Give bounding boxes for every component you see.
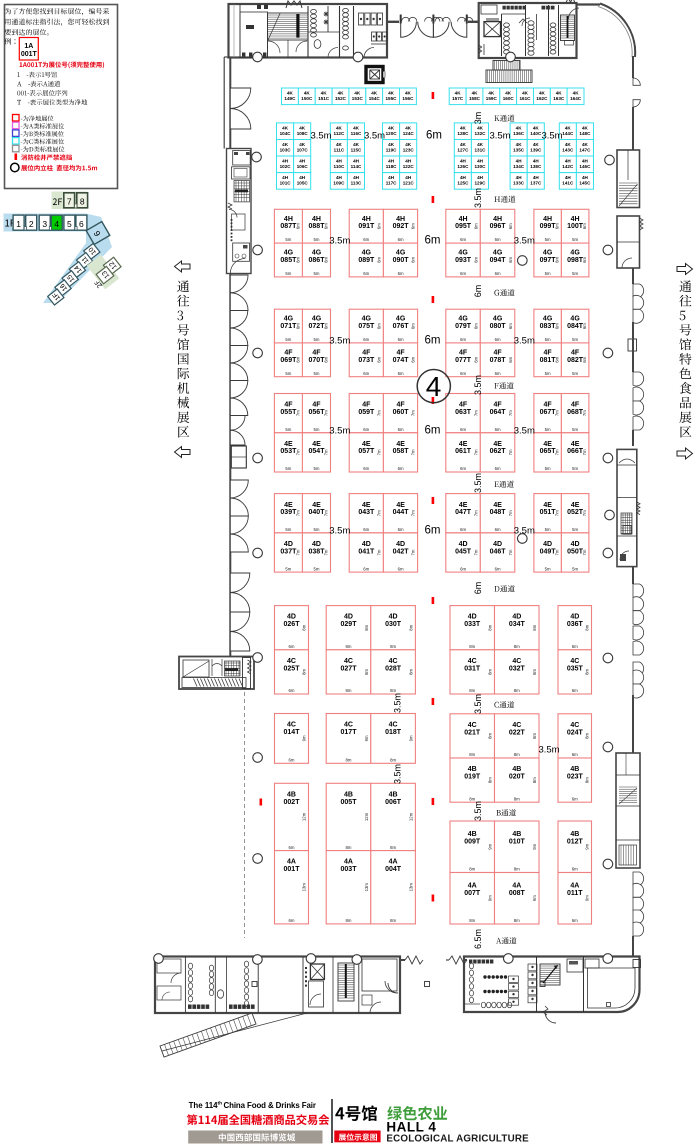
svg-text:6m: 6m (289, 688, 295, 693)
svg-text:078T: 078T (490, 357, 507, 364)
svg-text:8m: 8m (488, 777, 493, 783)
svg-text:6m: 6m (495, 427, 501, 432)
svg-text:4E: 4E (543, 502, 552, 509)
svg-text:7m: 7m (554, 449, 559, 455)
svg-text:4K: 4K (488, 91, 495, 96)
svg-text:8m: 8m (346, 688, 352, 693)
svg-text:6m: 6m (295, 223, 300, 229)
svg-text:107C: 107C (297, 147, 309, 152)
svg-text:042T: 042T (393, 548, 410, 555)
svg-text:6m: 6m (554, 223, 559, 229)
svg-text:4D: 4D (468, 614, 477, 621)
svg-text:041T: 041T (358, 548, 375, 555)
svg-text:4: 4 (54, 219, 59, 229)
svg-text:5m: 5m (314, 237, 320, 242)
svg-text:157C: 157C (452, 96, 464, 101)
svg-text:5m: 5m (285, 337, 291, 342)
svg-text:5m: 5m (285, 466, 291, 471)
svg-text:132C: 132C (475, 131, 487, 136)
svg-text:7m: 7m (508, 510, 513, 516)
svg-text:019T: 019T (464, 774, 481, 781)
svg-text:6m: 6m (398, 271, 404, 276)
svg-text:8m: 8m (514, 644, 520, 649)
svg-text:6m: 6m (460, 527, 466, 532)
svg-text:4K: 4K (299, 126, 306, 131)
svg-text:6m: 6m (426, 130, 442, 142)
svg-text:5m: 5m (572, 427, 578, 432)
svg-text:8m: 8m (514, 752, 520, 757)
svg-text:4K: 4K (582, 142, 589, 147)
svg-text:027T: 027T (341, 665, 358, 672)
svg-text:4F: 4F (284, 402, 293, 409)
svg-text:6m: 6m (554, 323, 559, 329)
svg-text:3.5m: 3.5m (541, 131, 562, 142)
svg-text:4G: 4G (312, 316, 322, 323)
svg-text:4D: 4D (389, 614, 398, 621)
svg-text:102C: 102C (280, 164, 292, 169)
svg-text:4E: 4E (459, 502, 468, 509)
svg-text:063T: 063T (455, 409, 472, 416)
svg-text:4D: 4D (312, 541, 321, 548)
svg-text:6m: 6m (363, 371, 369, 376)
svg-text:6m: 6m (411, 356, 416, 362)
svg-text:3.5m: 3.5m (393, 693, 403, 713)
svg-text:009T: 009T (464, 839, 481, 846)
svg-text:6m: 6m (460, 337, 466, 342)
svg-text:057T: 057T (358, 448, 375, 455)
svg-text:6m: 6m (582, 323, 587, 329)
svg-text:6m: 6m (376, 223, 381, 229)
svg-text:4G: 4G (570, 316, 580, 323)
svg-text:153C: 153C (352, 96, 364, 101)
svg-text:002T: 002T (284, 799, 301, 806)
svg-text:4F: 4F (284, 350, 293, 357)
svg-text:134C: 134C (513, 164, 525, 169)
svg-text:7m: 7m (508, 449, 513, 455)
svg-text:3.5m: 3.5m (514, 426, 535, 437)
svg-text:8m: 8m (585, 777, 590, 783)
svg-text:5m: 5m (545, 566, 551, 571)
svg-text:4F: 4F (397, 402, 406, 409)
svg-text:5m: 5m (314, 427, 320, 432)
svg-text:7m: 7m (376, 510, 381, 516)
svg-text:6m: 6m (425, 335, 441, 347)
svg-text:034T: 034T (509, 621, 526, 628)
svg-text:5m: 5m (285, 527, 291, 532)
svg-text:5m: 5m (545, 527, 551, 532)
svg-text:3: 3 (42, 219, 47, 229)
svg-text:4K: 4K (460, 126, 467, 131)
svg-text:6m: 6m (473, 223, 478, 229)
svg-text:4A: 4A (468, 883, 477, 890)
svg-text:12m: 12m (302, 812, 307, 821)
svg-text:7m: 7m (582, 549, 587, 555)
svg-text:4D: 4D (287, 614, 296, 621)
svg-text:4D: 4D (344, 614, 353, 621)
svg-text:5m: 5m (285, 271, 291, 276)
svg-text:139C: 139C (530, 147, 542, 152)
svg-text:114C: 114C (351, 164, 362, 169)
svg-text:5m: 5m (314, 466, 320, 471)
svg-text:6m: 6m (460, 427, 466, 432)
svg-text:HALL 4: HALL 4 (386, 1120, 436, 1135)
svg-text:6m: 6m (376, 323, 381, 329)
svg-text:3.5m: 3.5m (473, 801, 483, 821)
svg-text:146C: 146C (579, 164, 591, 169)
svg-text:8m: 8m (346, 758, 352, 763)
svg-text:4K: 4K (282, 142, 289, 147)
svg-text:8m: 8m (532, 624, 537, 630)
svg-text:142C: 142C (562, 164, 574, 169)
svg-text:4G: 4G (362, 250, 372, 257)
svg-text:4K: 4K (533, 142, 540, 147)
svg-text:3.5m: 3.5m (393, 764, 403, 784)
svg-text:020T: 020T (509, 774, 526, 781)
svg-text:022T: 022T (509, 729, 526, 736)
svg-text:5m: 5m (572, 271, 578, 276)
svg-text:4F: 4F (459, 402, 468, 409)
svg-text:004T: 004T (385, 866, 402, 873)
svg-text:4A: 4A (287, 859, 296, 866)
svg-text:079T: 079T (455, 323, 472, 330)
svg-text:164C: 164C (570, 96, 582, 101)
svg-text:4G: 4G (396, 250, 406, 257)
svg-text:6m: 6m (460, 371, 466, 376)
svg-text:6m: 6m (473, 285, 483, 298)
svg-text:4K: 4K (405, 91, 412, 96)
svg-text:121C: 121C (403, 181, 415, 186)
svg-text:4F: 4F (312, 350, 321, 357)
svg-text:133C: 133C (513, 181, 525, 186)
svg-text:5m: 5m (572, 371, 578, 376)
svg-text:115C: 115C (351, 147, 362, 152)
svg-text:6m: 6m (582, 223, 587, 229)
svg-text:8m: 8m (514, 796, 520, 801)
svg-text:4E: 4E (459, 441, 468, 448)
svg-text:117C: 117C (386, 181, 397, 186)
svg-text:4K: 4K (287, 91, 294, 96)
svg-text:8m: 8m (532, 733, 537, 739)
svg-text:9m: 9m (532, 895, 537, 901)
svg-text:5m: 5m (314, 371, 320, 376)
svg-text:008T: 008T (509, 890, 526, 897)
svg-text:7m: 7m (376, 549, 381, 555)
svg-text:4K: 4K (299, 142, 306, 147)
svg-text:7m: 7m (376, 449, 381, 455)
svg-text:1: 1 (16, 219, 21, 229)
svg-text:9m: 9m (532, 843, 537, 849)
svg-text:9m: 9m (585, 843, 590, 849)
svg-text:4K: 4K (336, 142, 343, 147)
svg-text:8m: 8m (390, 845, 396, 850)
svg-text:7m: 7m (324, 510, 329, 516)
svg-text:7m: 7m (473, 549, 478, 555)
svg-text:3.5m: 3.5m (473, 694, 483, 714)
svg-text:6m: 6m (495, 527, 501, 532)
svg-text:064T: 064T (490, 409, 507, 416)
svg-text:8m: 8m (514, 867, 520, 872)
svg-text:092T: 092T (393, 223, 410, 230)
svg-text:7m: 7m (411, 510, 416, 516)
svg-text:13m: 13m (408, 883, 413, 892)
svg-text:8: 8 (80, 197, 85, 207)
svg-text:8m: 8m (390, 758, 396, 763)
svg-text:6m: 6m (460, 237, 466, 242)
svg-text:073T: 073T (358, 357, 375, 364)
svg-text:4H: 4H (396, 216, 405, 223)
svg-text:8m: 8m (390, 688, 396, 693)
svg-text:110C: 110C (334, 164, 345, 169)
svg-text:6m: 6m (295, 323, 300, 329)
svg-text:4K: 4K (371, 91, 378, 96)
svg-text:1A: 1A (24, 43, 33, 50)
svg-text:046T: 046T (490, 548, 507, 555)
svg-text:12m: 12m (364, 812, 369, 821)
svg-text:6m: 6m (495, 566, 501, 571)
svg-text:104C: 104C (280, 131, 292, 136)
svg-text:018T: 018T (385, 729, 402, 736)
svg-text:4D: 4D (571, 541, 580, 548)
svg-text:4H: 4H (516, 159, 523, 164)
svg-text:6m: 6m (289, 644, 295, 649)
svg-text:8m: 8m (585, 733, 590, 739)
svg-text:030T: 030T (385, 621, 402, 628)
svg-text:5m: 5m (314, 566, 320, 571)
svg-text:3.5m: 3.5m (514, 336, 535, 347)
svg-text:7m: 7m (324, 549, 329, 555)
svg-text:4K: 4K (353, 126, 360, 131)
svg-text:4C: 4C (344, 658, 353, 665)
svg-text:4E: 4E (284, 441, 293, 448)
svg-text:4C: 4C (389, 722, 398, 729)
svg-text:4G: 4G (493, 250, 503, 257)
svg-text:035T: 035T (567, 665, 584, 672)
svg-text:3.5m: 3.5m (489, 131, 510, 142)
svg-text:120C: 120C (386, 131, 398, 136)
svg-text:7m: 7m (582, 449, 587, 455)
svg-text:8m: 8m (302, 624, 307, 630)
svg-text:149C: 149C (284, 96, 296, 101)
svg-text:4: 4 (426, 371, 442, 402)
svg-text:4B: 4B (287, 791, 296, 798)
svg-text:ECOLOGICAL AGRICULTURE: ECOLOGICAL AGRICULTURE (386, 1133, 529, 1144)
svg-text:5: 5 (67, 219, 72, 229)
svg-text:138C: 138C (530, 164, 542, 169)
svg-text:4E: 4E (493, 502, 502, 509)
svg-text:China Food & Drinks Fair: China Food & Drinks Fair (224, 1101, 316, 1110)
svg-text:025T: 025T (284, 665, 301, 672)
svg-text:4K: 4K (321, 91, 328, 96)
svg-text:140C: 140C (530, 131, 542, 136)
svg-text:130C: 130C (475, 164, 487, 169)
svg-text:8m: 8m (532, 669, 537, 675)
svg-text:4H: 4H (282, 175, 289, 180)
svg-text:151C: 151C (318, 96, 330, 101)
svg-text:5m: 5m (545, 237, 551, 242)
svg-text:4G: 4G (362, 316, 372, 323)
svg-text:6m: 6m (363, 271, 369, 276)
svg-text:8m: 8m (488, 624, 493, 630)
svg-text:028T: 028T (385, 665, 402, 672)
svg-text:161C: 161C (520, 96, 532, 101)
svg-text:090T: 090T (393, 257, 410, 264)
svg-text:4H: 4H (493, 216, 502, 223)
svg-text:129C: 129C (475, 181, 487, 186)
svg-text:6m: 6m (376, 356, 381, 362)
svg-text:8m: 8m (469, 918, 475, 923)
svg-text:4K: 4K (388, 142, 395, 147)
svg-text:6m: 6m (460, 466, 466, 471)
svg-text:4K: 4K (522, 91, 529, 96)
svg-text:7m: 7m (295, 549, 300, 555)
svg-text:7: 7 (67, 197, 72, 207)
svg-text:5m: 5m (545, 371, 551, 376)
svg-text:8m: 8m (346, 918, 352, 923)
svg-text:5m: 5m (572, 237, 578, 242)
svg-text:155C: 155C (386, 96, 398, 101)
svg-text:031T: 031T (464, 665, 481, 672)
svg-text:4K: 4K (505, 91, 512, 96)
svg-text:8m: 8m (514, 688, 520, 693)
svg-text:4K: 4K (516, 126, 523, 131)
svg-text:4K: 4K (282, 126, 289, 131)
svg-text:032T: 032T (509, 665, 526, 672)
svg-text:4C: 4C (570, 658, 579, 665)
svg-text:4H: 4H (362, 216, 371, 223)
svg-text:5m: 5m (572, 466, 578, 471)
svg-text:4H: 4H (571, 216, 580, 223)
svg-text:4F: 4F (571, 402, 580, 409)
svg-text:6m: 6m (572, 796, 578, 801)
svg-text:105C: 105C (297, 181, 309, 186)
svg-text:4F: 4F (571, 350, 580, 357)
svg-text:4F: 4F (544, 350, 553, 357)
svg-text:7m: 7m (554, 410, 559, 416)
svg-text:5m: 5m (572, 566, 578, 571)
svg-text:4G: 4G (396, 316, 406, 323)
svg-text:4H: 4H (582, 159, 589, 164)
svg-text:024T: 024T (567, 729, 584, 736)
svg-text:6m: 6m (398, 371, 404, 376)
svg-text:4E: 4E (571, 441, 580, 448)
svg-text:4H: 4H (336, 175, 343, 180)
svg-text:011T: 011T (567, 890, 583, 897)
svg-text:6m: 6m (363, 337, 369, 342)
svg-text:4H: 4H (460, 175, 467, 180)
svg-text:6m: 6m (398, 466, 404, 471)
svg-text:4F: 4F (459, 350, 468, 357)
svg-text:6.5m: 6.5m (473, 929, 483, 949)
svg-text:4C: 4C (287, 658, 296, 665)
svg-text:4C: 4C (344, 722, 353, 729)
svg-text:12m: 12m (408, 812, 413, 821)
svg-text:4H: 4H (533, 175, 540, 180)
svg-text:5m: 5m (545, 337, 551, 342)
svg-text:6m: 6m (411, 323, 416, 329)
svg-text:4E: 4E (396, 441, 405, 448)
svg-text:4H: 4H (565, 175, 572, 180)
svg-text:5m: 5m (314, 527, 320, 532)
svg-text:124C: 124C (403, 131, 415, 136)
svg-text:6m: 6m (460, 271, 466, 276)
svg-text:4D: 4D (493, 541, 502, 548)
svg-text:4K: 4K (477, 142, 484, 147)
svg-text:5m: 5m (285, 237, 291, 242)
svg-text:4G: 4G (284, 250, 294, 257)
svg-text:4B: 4B (512, 766, 521, 773)
svg-text:4E: 4E (284, 502, 293, 509)
svg-text:4C: 4C (468, 722, 477, 729)
svg-text:6m: 6m (473, 356, 478, 362)
svg-text:125C: 125C (457, 181, 469, 186)
svg-text:127C: 127C (457, 147, 469, 152)
svg-text:048T: 048T (490, 509, 507, 516)
svg-text:8m: 8m (364, 669, 369, 675)
svg-text:4A: 4A (512, 883, 521, 890)
svg-text:6m: 6m (324, 223, 329, 229)
svg-text:3.5m: 3.5m (473, 188, 483, 208)
svg-text:6m: 6m (425, 235, 441, 247)
svg-text:010T: 010T (509, 839, 526, 846)
svg-text:3.5m: 3.5m (364, 131, 385, 142)
svg-text:4G: 4G (284, 316, 294, 323)
svg-text:6m: 6m (508, 356, 513, 362)
svg-text:4B: 4B (570, 766, 579, 773)
svg-text:7m: 7m (554, 510, 559, 516)
svg-text:9m: 9m (488, 895, 493, 901)
svg-text:5m: 5m (545, 466, 551, 471)
svg-text:012T: 012T (567, 839, 584, 846)
svg-text:156C: 156C (402, 96, 414, 101)
svg-text:045T: 045T (455, 548, 472, 555)
svg-text:6m: 6m (508, 223, 513, 229)
svg-text:6m: 6m (398, 237, 404, 242)
svg-text:7m: 7m (508, 549, 513, 555)
svg-text:145C: 145C (579, 181, 591, 186)
svg-text:017T: 017T (341, 729, 358, 736)
svg-text:6m: 6m (495, 466, 501, 471)
svg-text:033T: 033T (464, 621, 481, 628)
svg-text:128C: 128C (457, 131, 469, 136)
svg-text:4B: 4B (344, 791, 353, 798)
svg-text:4K: 4K (472, 91, 479, 96)
svg-text:8m: 8m (469, 867, 475, 872)
svg-text:9m: 9m (364, 735, 369, 741)
svg-text:154C: 154C (369, 96, 381, 101)
svg-text:6m: 6m (411, 223, 416, 229)
svg-text:4G: 4G (458, 250, 468, 257)
svg-text:7m: 7m (473, 410, 478, 416)
svg-text:5m: 5m (285, 566, 291, 571)
svg-text:8m: 8m (488, 669, 493, 675)
svg-text:021T: 021T (464, 729, 481, 736)
svg-text:13m: 13m (302, 883, 307, 892)
svg-text:6m: 6m (376, 257, 381, 263)
svg-text:8m: 8m (585, 669, 590, 675)
svg-text:6m: 6m (363, 466, 369, 471)
svg-text:6m: 6m (398, 427, 404, 432)
svg-text:094T: 094T (490, 257, 507, 264)
svg-text:6m: 6m (495, 371, 501, 376)
svg-text:4K: 4K (354, 91, 361, 96)
svg-text:6m: 6m (398, 566, 404, 571)
svg-text:6m: 6m (508, 257, 513, 263)
svg-text:4H: 4H (299, 175, 306, 180)
svg-text:4H: 4H (582, 175, 589, 180)
svg-text:4C: 4C (512, 658, 521, 665)
svg-text:150C: 150C (301, 96, 313, 101)
svg-text:4D: 4D (459, 541, 468, 548)
